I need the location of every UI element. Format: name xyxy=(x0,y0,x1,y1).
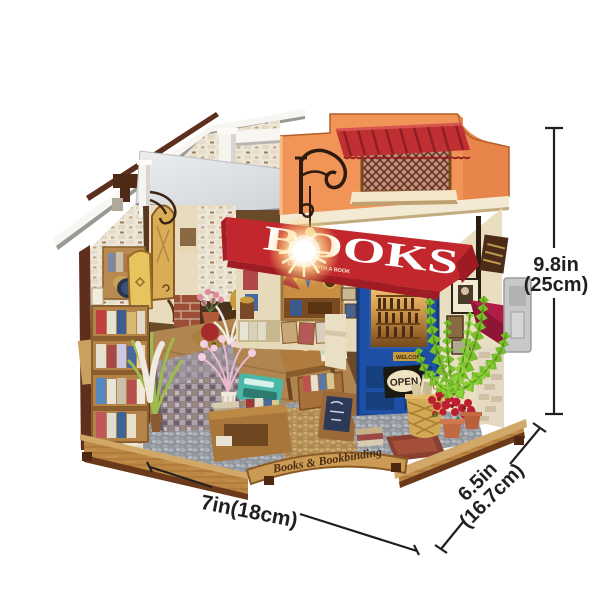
svg-text:(25cm): (25cm) xyxy=(524,274,588,296)
svg-text:9.8in: 9.8in xyxy=(533,254,579,276)
